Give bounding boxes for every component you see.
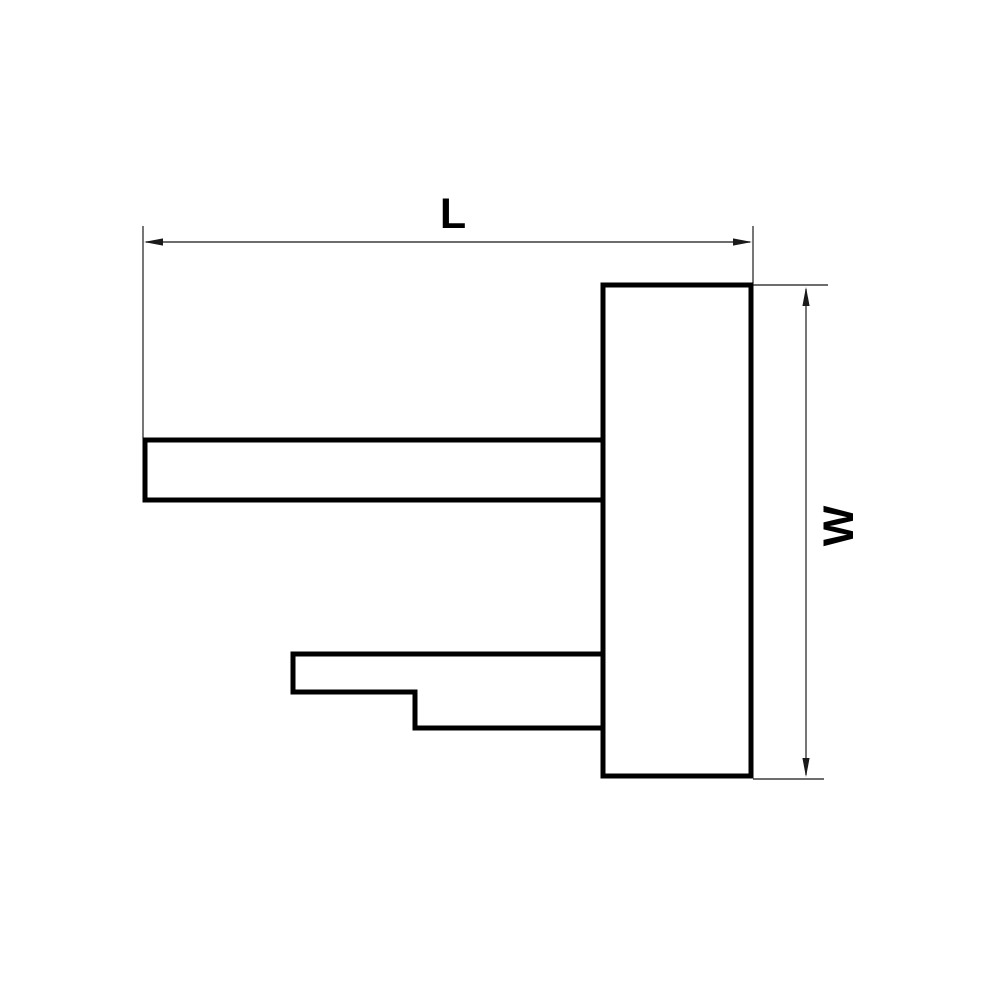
width-label: W	[815, 505, 863, 546]
arrowhead-down-icon	[802, 758, 809, 777]
arrowhead-up-icon	[802, 287, 809, 306]
width-dimension: W	[753, 285, 863, 779]
part-outline	[145, 285, 751, 776]
lower-stepped-bar	[293, 654, 603, 728]
length-label: L	[440, 190, 466, 238]
arrowhead-right-icon	[733, 238, 752, 245]
flange-rectangle	[603, 285, 751, 776]
length-dimension: L	[143, 190, 753, 438]
technical-drawing-canvas: L W	[0, 0, 1000, 1000]
arrowhead-left-icon	[144, 238, 163, 245]
upper-shaft-bar	[145, 440, 603, 500]
drawing-svg: L W	[0, 0, 1000, 1000]
